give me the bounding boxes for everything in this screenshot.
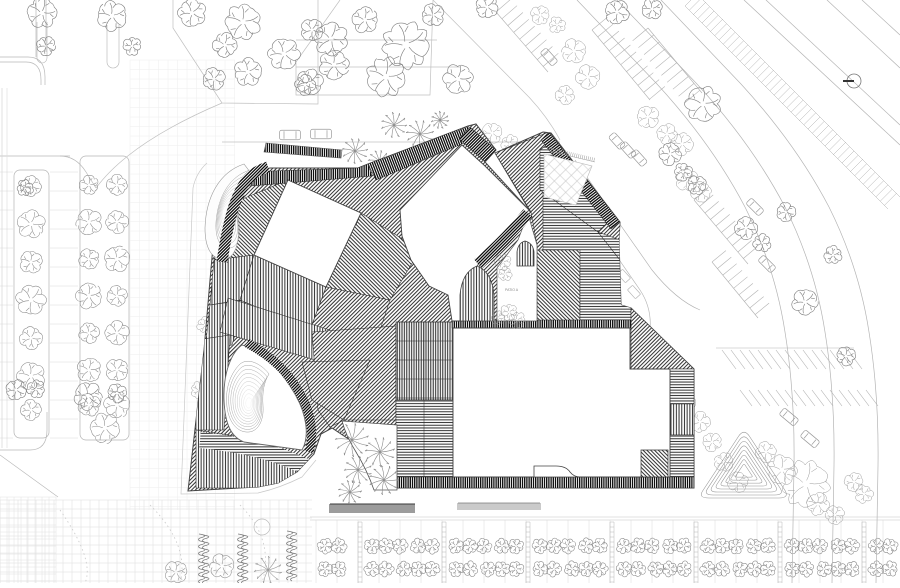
svg-text:PATIO A: PATIO A	[505, 288, 519, 292]
